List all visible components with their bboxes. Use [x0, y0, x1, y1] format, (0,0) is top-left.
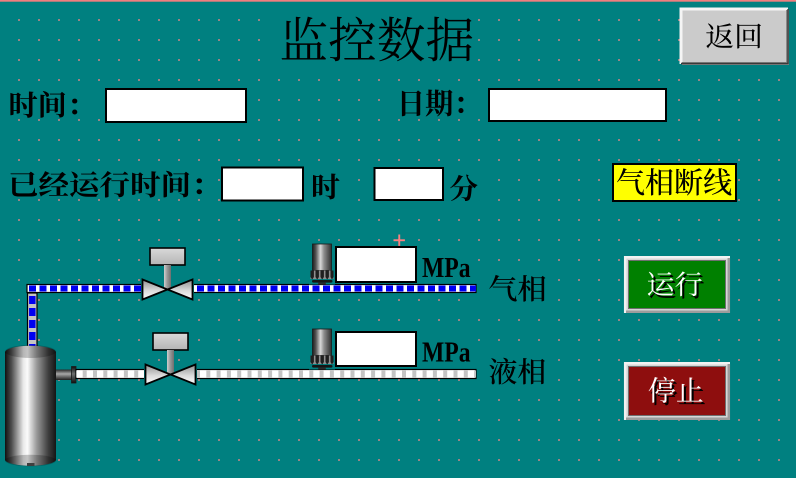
svg-text:MPa: MPa — [422, 253, 471, 284]
svg-text:MPa: MPa — [422, 338, 471, 369]
